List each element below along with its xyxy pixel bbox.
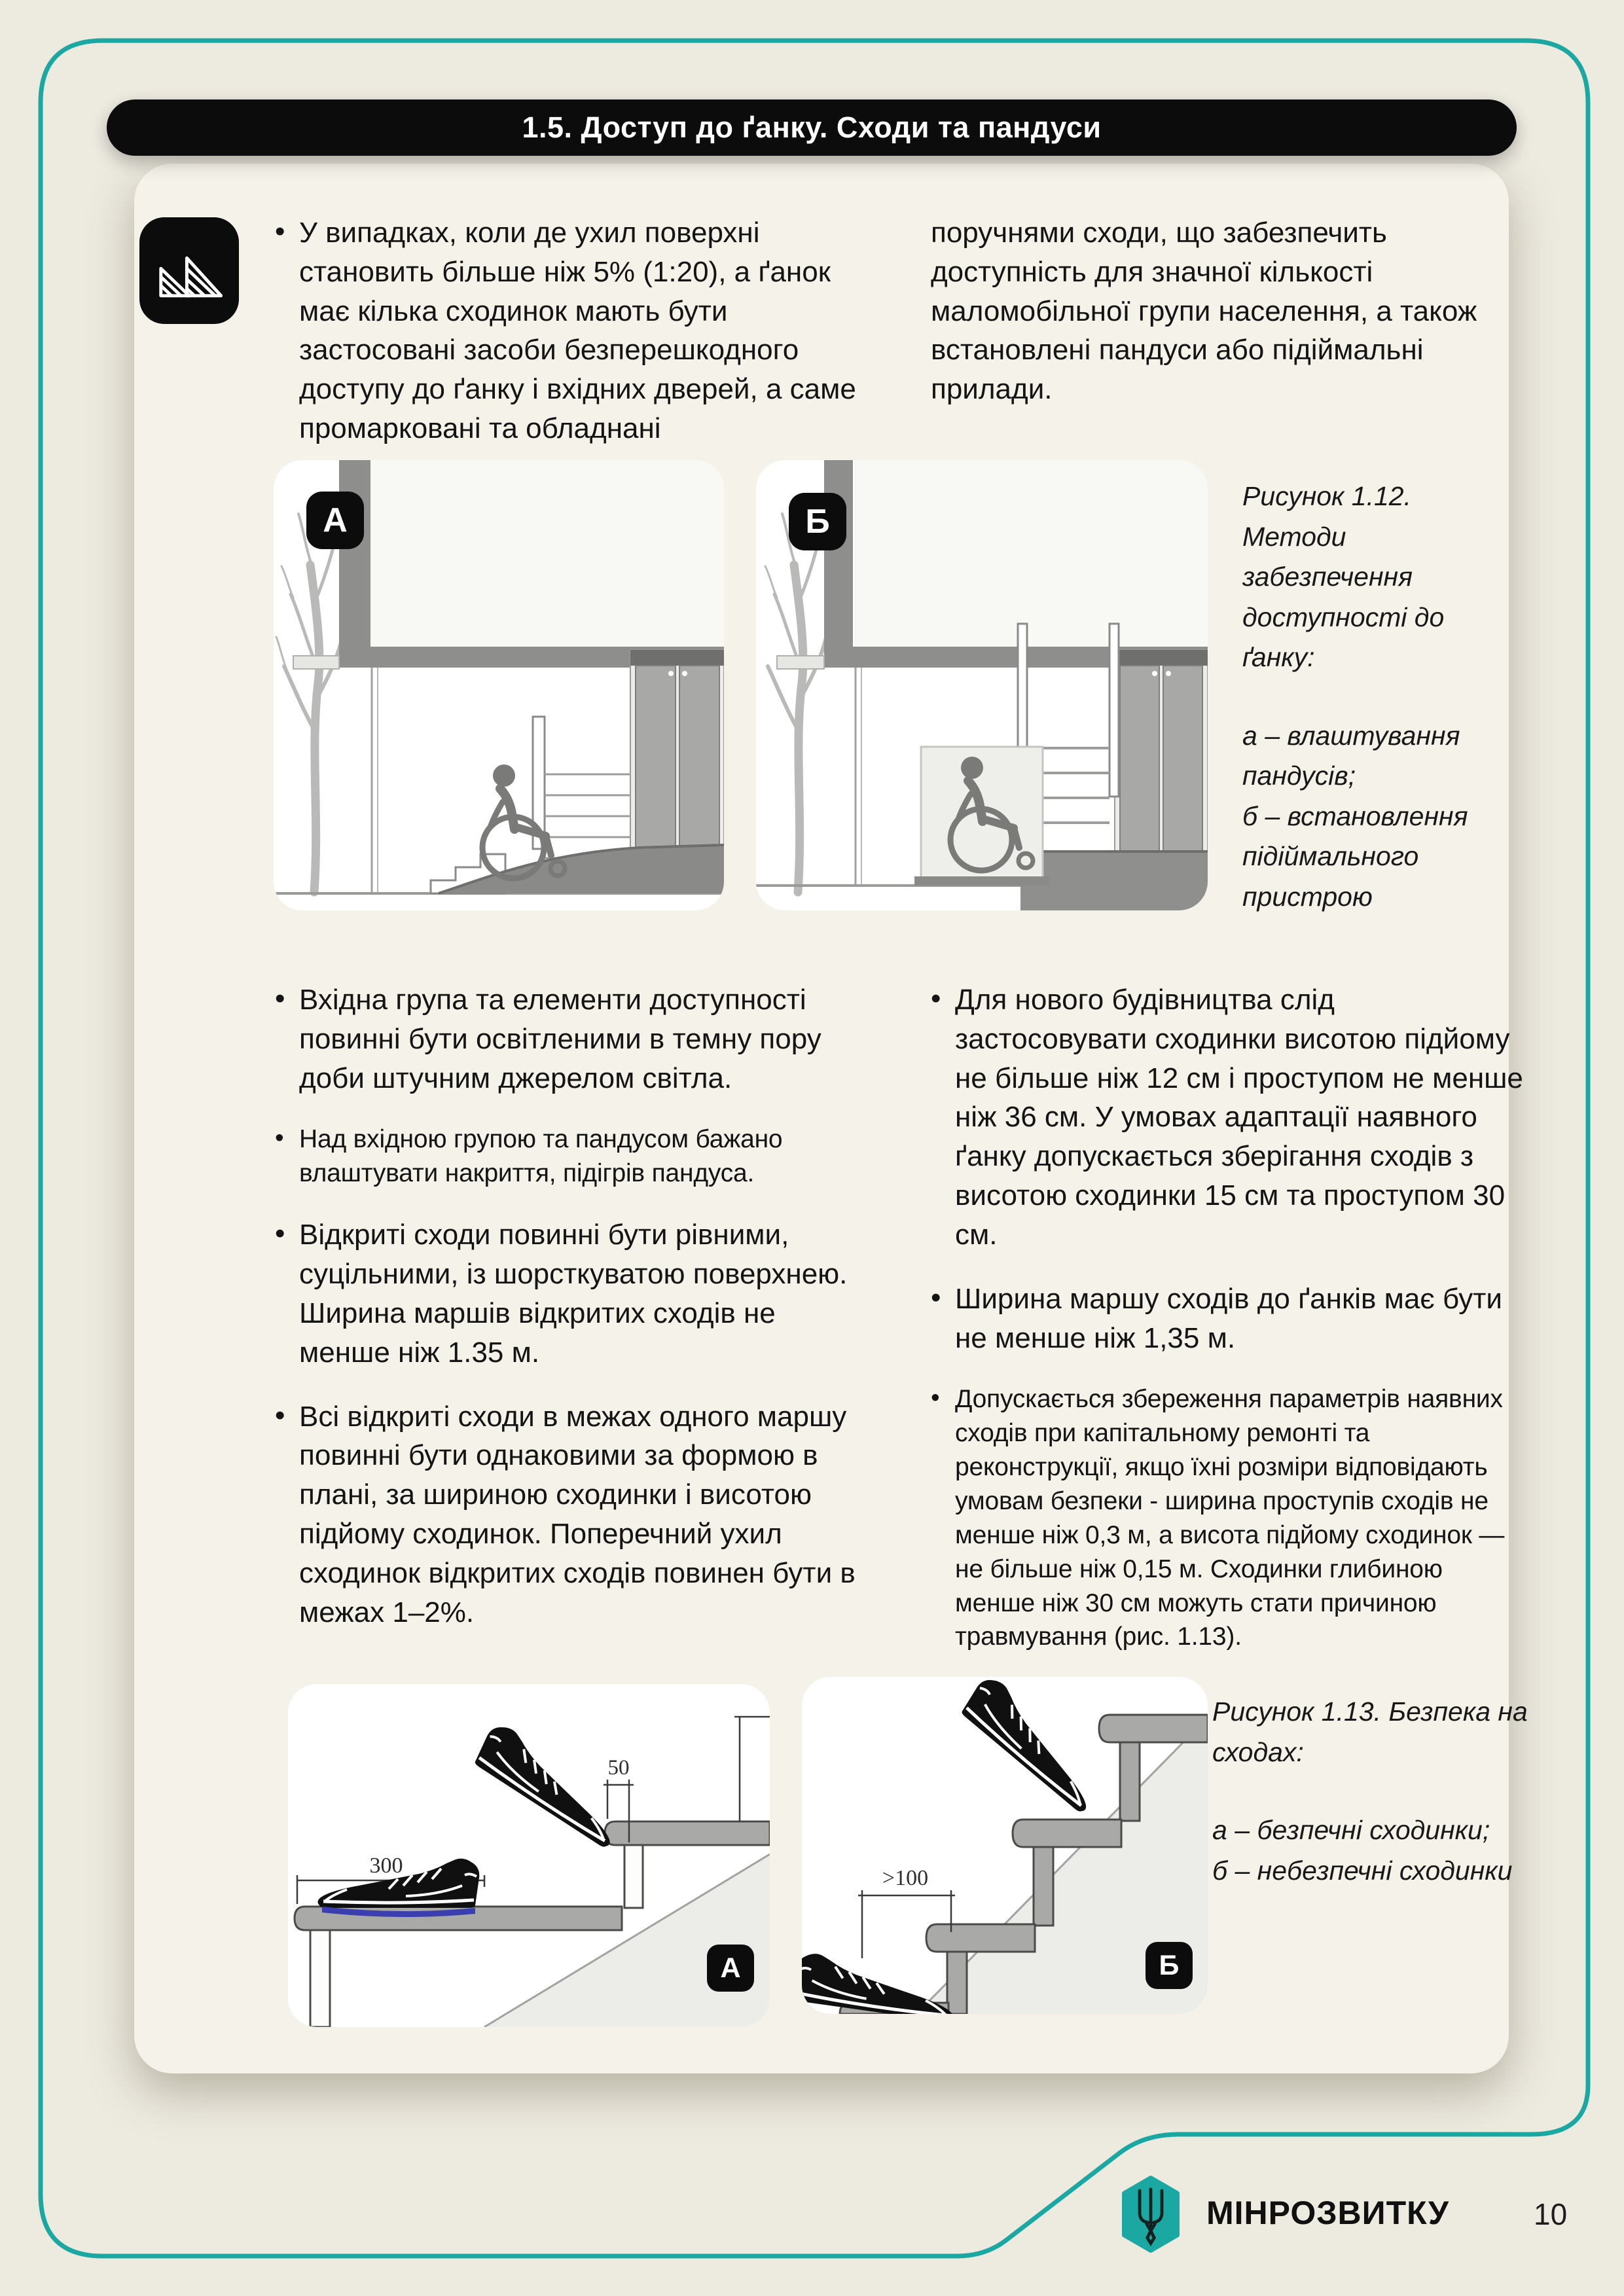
figure-1-12-b: Б [756, 460, 1208, 910]
bullet-item: Відкриті сходи повинні бути рівними, суц… [275, 1215, 874, 1372]
ministry-name: МІНРОЗВИТКУ [1206, 2194, 1449, 2232]
figure-1-12-a-label: А [323, 501, 348, 540]
bullet-item: Над вхідною групою та пандусом бажано вл… [275, 1122, 874, 1191]
figure-1-12-caption-item-b: б – встановлення підіймального пристрою [1242, 797, 1517, 918]
caption-spacer [1212, 1772, 1533, 1810]
bullet-item: Всі відкриті сходи в межах одного маршу … [275, 1397, 874, 1632]
bullet-item: Для нового будівництва слід застосовуват… [931, 980, 1523, 1255]
dimension-300-label: 300 [370, 1854, 403, 1878]
intro-paragraph-left: У випадках, коли де ухил поверхні станов… [275, 213, 874, 448]
bullet-list-left: Вхідна група та елементи доступності пов… [275, 980, 874, 1657]
dimension-50-label: 50 [608, 1756, 630, 1780]
figure-1-13-b-label: Б [1159, 1950, 1180, 1982]
figure-label-badge: Б [789, 493, 846, 550]
figure-1-12-caption-item-a: а – влаштування пандусів; [1242, 716, 1517, 797]
intro-paragraph-right: поручнями сходи, що забезпечить доступні… [931, 217, 1477, 405]
figure-1-13-a-label: А [720, 1952, 740, 1984]
ministry-trident-logo [1116, 2174, 1185, 2254]
figure-1-13-caption: Рисунок 1.13. Безпека на сходах: а – без… [1212, 1692, 1533, 1891]
page-number: 10 [1534, 2197, 1567, 2232]
figure-label-badge: А [707, 1945, 754, 1992]
bullet-item: Допускається збереження параметрів наявн… [931, 1382, 1523, 1654]
bullet-list-right: Для нового будівництва слід застосовуват… [931, 980, 1523, 1679]
figure-label-badge: А [306, 492, 364, 549]
figure-label-badge: Б [1146, 1942, 1193, 1989]
figure-1-12-caption: Рисунок 1.12. Методи забезпечення доступ… [1242, 476, 1517, 917]
document-page: { "header": { "title": "1.5. Доступ до ґ… [0, 0, 1624, 2296]
caption-spacer [1242, 678, 1517, 716]
figure-1-13-caption-item-a: а – безпечні сходинки; [1212, 1810, 1533, 1851]
bullet-item: Вхідна група та елементи доступності пов… [275, 980, 874, 1098]
intro-right-column: поручнями сходи, що забезпечить доступні… [931, 213, 1520, 409]
figure-1-13-a-illustration: 300 50 [288, 1684, 770, 2027]
section-header: 1.5. Доступ до ґанку. Сходи та пандуси [107, 99, 1517, 156]
page-title: 1.5. Доступ до ґанку. Сходи та пандуси [522, 111, 1101, 145]
bullet-item: Ширина маршу сходів до ґанків має бути н… [931, 1280, 1523, 1358]
ramp-icon-glyph [154, 241, 225, 301]
ramp-icon [139, 217, 239, 324]
figure-1-12-caption-title: Рисунок 1.12. Методи забезпечення доступ… [1242, 476, 1517, 678]
figure-1-13-a: 300 50 А [288, 1684, 770, 2027]
dimension-100-label: >100 [882, 1866, 928, 1890]
figure-1-12-b-label: Б [805, 502, 829, 541]
figure-1-13-b: >100 Б [802, 1677, 1208, 2014]
figure-1-12-a: А [274, 460, 724, 910]
intro-left-column: У випадках, коли де ухил поверхні станов… [275, 213, 874, 473]
figure-1-13-caption-title: Рисунок 1.13. Безпека на сходах: [1212, 1692, 1533, 1772]
figure-1-13-caption-item-b: б – небезпечні сходинки [1212, 1851, 1533, 1892]
